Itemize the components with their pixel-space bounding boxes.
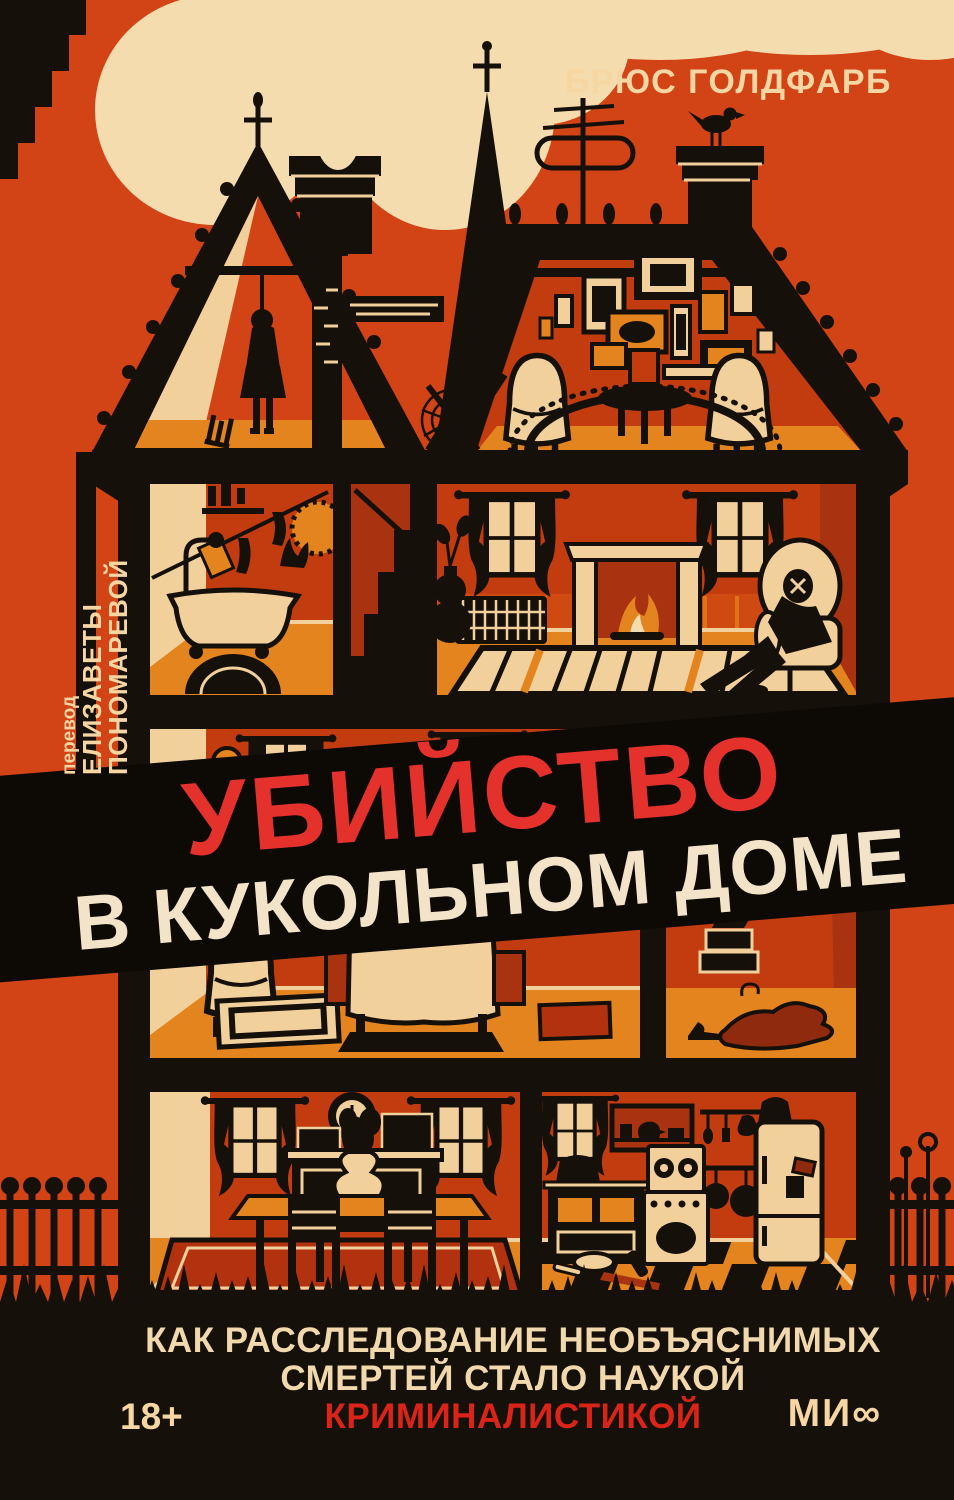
book-cover: БРЮС ГОЛДФАРБ перевод ЕЛИЗАВЕТЫ ПОНОМАРЕ…: [0, 0, 954, 1500]
publisher-logo: МИ∞: [788, 1392, 882, 1436]
age-rating-badge: 18+: [120, 1396, 183, 1438]
floor-beam-3: [118, 1058, 890, 1092]
fireplace-icon: [566, 544, 706, 650]
author-name: БРЮС ГОЛДФАРБ: [565, 63, 892, 102]
chimney-right: [676, 146, 764, 234]
attic-floor-beam: [92, 450, 908, 484]
smoke-clouds: [95, 0, 954, 230]
dining-room: [148, 1092, 522, 1296]
kitchen-shelf: [612, 1106, 692, 1150]
bird-icon: [688, 108, 745, 147]
living-room: [429, 484, 858, 702]
bedroom-rug: [217, 995, 339, 1047]
subtitle-line-1: КАК РАССЛЕДОВАНИЕ НЕОБЪЯСНИМЫХ: [93, 1322, 933, 1360]
attic-gallery-room: [430, 224, 908, 466]
translator-name: ЕЛИЗАВЕТЫ ПОНОМАРЕВОЙ: [79, 435, 132, 775]
spider-web-icon: [422, 388, 482, 450]
kitchen: [493, 1092, 884, 1292]
translator-credit: перевод ЕЛИЗАВЕТЫ ПОНОМАРЕВОЙ: [78, 435, 132, 775]
kitchen-stove-icon: [644, 1146, 708, 1264]
bathroom: [148, 482, 344, 695]
refrigerator-icon: [756, 1097, 822, 1264]
